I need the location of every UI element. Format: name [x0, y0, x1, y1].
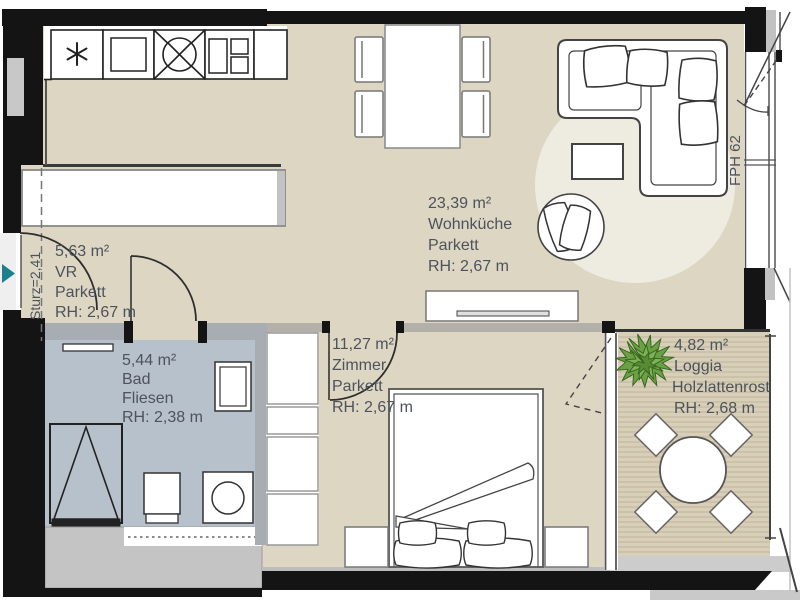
- svg-text:RH: 2,68 m: RH: 2,68 m: [674, 400, 755, 417]
- svg-text:Loggia: Loggia: [674, 358, 722, 375]
- svg-text:11,27 m²: 11,27 m²: [332, 336, 395, 353]
- svg-text:23,39 m²: 23,39 m²: [428, 195, 492, 212]
- svg-text:Parkett: Parkett: [332, 378, 383, 395]
- svg-text:Parkett: Parkett: [55, 284, 106, 301]
- svg-text:RH: 2,67 m: RH: 2,67 m: [332, 399, 413, 416]
- svg-text:Fliesen: Fliesen: [122, 390, 174, 407]
- svg-text:4,82 m²: 4,82 m²: [674, 337, 729, 354]
- svg-text:VR: VR: [55, 264, 77, 281]
- svg-text:FPH 62: FPH 62: [727, 135, 744, 186]
- svg-text:Sturz=2,41: Sturz=2,41: [27, 252, 43, 320]
- svg-text:RH: 2,67 m: RH: 2,67 m: [55, 304, 136, 321]
- svg-text:RH: 2,38 m: RH: 2,38 m: [122, 409, 203, 426]
- svg-text:Parkett: Parkett: [428, 237, 479, 254]
- svg-text:RH: 2,67 m: RH: 2,67 m: [428, 258, 509, 275]
- svg-text:5,63 m²: 5,63 m²: [55, 243, 110, 260]
- svg-text:5,44 m²: 5,44 m²: [122, 352, 177, 369]
- svg-text:Bad: Bad: [122, 371, 150, 388]
- svg-text:Holzlattenrost: Holzlattenrost: [672, 379, 770, 396]
- svg-text:Wohnküche: Wohnküche: [428, 216, 512, 233]
- svg-text:Zimmer: Zimmer: [332, 357, 387, 374]
